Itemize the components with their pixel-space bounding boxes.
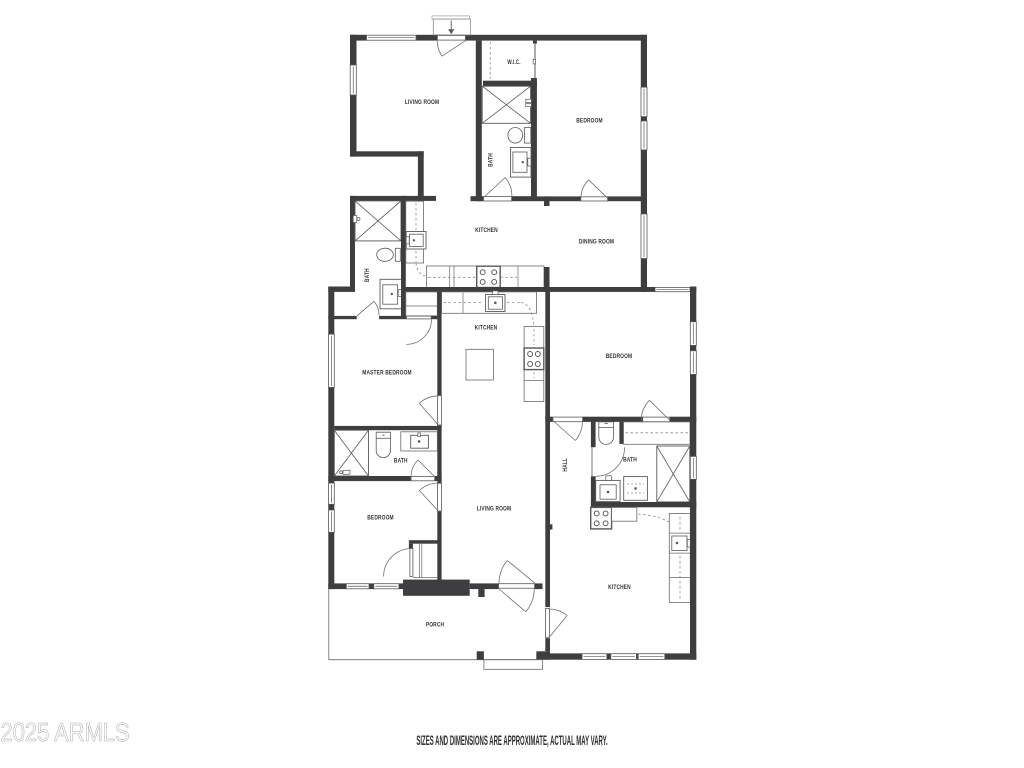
svg-text:LIVING ROOM: LIVING ROOM <box>405 99 439 106</box>
svg-text:BATH: BATH <box>364 268 371 282</box>
svg-text:SIZES AND DIMENSIONS ARE APPRO: SIZES AND DIMENSIONS ARE APPROXIMATE, AC… <box>416 735 607 749</box>
svg-text:BATH: BATH <box>488 153 495 167</box>
svg-text:KITCHEN: KITCHEN <box>475 227 498 234</box>
svg-text:PORCH: PORCH <box>426 622 444 629</box>
svg-text:W.I.C.: W.I.C. <box>507 59 521 66</box>
svg-text:2025 ARMLS: 2025 ARMLS <box>1 718 130 747</box>
svg-text:BEDROOM: BEDROOM <box>367 515 394 522</box>
svg-text:KITCHEN: KITCHEN <box>608 584 631 591</box>
svg-text:KITCHEN: KITCHEN <box>475 325 498 332</box>
svg-text:BATH: BATH <box>394 458 408 465</box>
svg-text:HALL: HALL <box>563 458 570 472</box>
svg-text:LIVING ROOM: LIVING ROOM <box>477 506 511 513</box>
svg-text:BEDROOM: BEDROOM <box>576 118 603 125</box>
svg-text:MASTER BEDROOM: MASTER BEDROOM <box>362 370 411 377</box>
svg-text:BATH: BATH <box>623 457 637 464</box>
svg-text:BEDROOM: BEDROOM <box>606 353 633 360</box>
svg-text:DINING ROOM: DINING ROOM <box>579 239 614 246</box>
